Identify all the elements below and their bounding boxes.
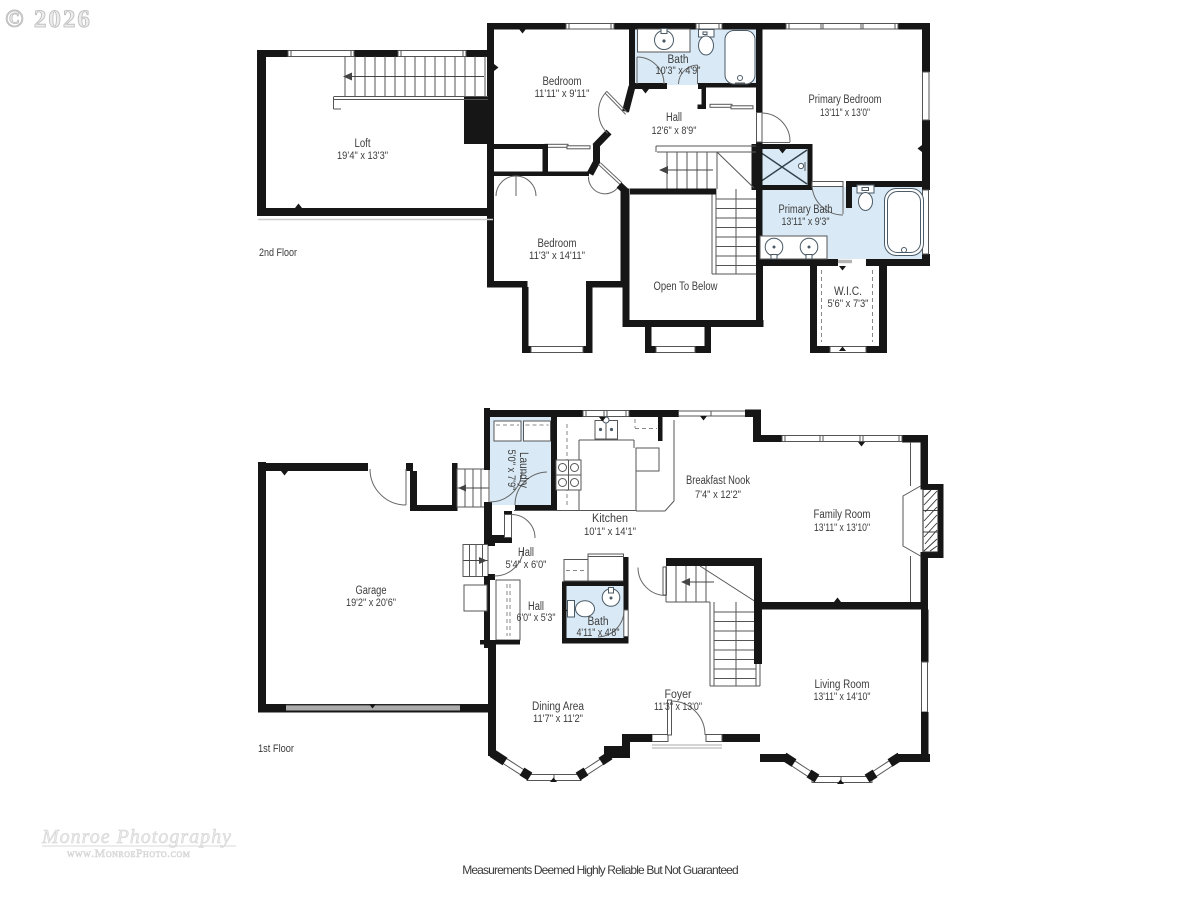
svg-text:Primary Bath: Primary Bath [779,204,833,216]
svg-text:5'4" x 6'0": 5'4" x 6'0" [506,559,547,571]
svg-text:Breakfast Nook: Breakfast Nook [686,475,750,487]
svg-text:Primary Bedroom: Primary Bedroom [809,94,882,106]
svg-text:www.MonroePhoto.com: www.MonroePhoto.com [67,846,190,860]
svg-text:1st Floor: 1st Floor [258,743,294,755]
svg-text:Hall: Hall [666,112,682,124]
svg-text:Kitchen: Kitchen [592,513,628,525]
svg-text:10'3" x 4'9": 10'3" x 4'9" [656,65,701,77]
svg-text:Monroe Photography: Monroe Photography [41,826,232,848]
svg-text:6'0" x 5'3": 6'0" x 5'3" [517,612,556,624]
svg-text:Hall: Hall [518,547,534,559]
svg-text:13'11" x 13'10": 13'11" x 13'10" [814,522,870,534]
svg-text:5'0" x 7'9": 5'0" x 7'9" [505,450,517,491]
svg-text:10'1" x 14'1": 10'1" x 14'1" [584,526,636,538]
svg-text:Living Room: Living Room [815,679,870,691]
svg-text:13'11" x 13'0": 13'11" x 13'0" [820,107,870,119]
svg-text:11'7" x 11'2": 11'7" x 11'2" [533,713,583,725]
svg-text:© 2026: © 2026 [5,6,92,33]
svg-text:11'3" x 13'0": 11'3" x 13'0" [654,701,702,713]
svg-text:Loft: Loft [355,138,372,150]
svg-text:Open To Below: Open To Below [654,281,719,293]
svg-text:Measurements Deemed Highly Rel: Measurements Deemed Highly Reliable But … [462,863,738,877]
svg-text:12'6" x 8'9": 12'6" x 8'9" [652,125,697,137]
svg-text:Bedroom: Bedroom [543,76,582,88]
svg-text:Bedroom: Bedroom [538,238,577,250]
svg-text:7'4" x 12'2": 7'4" x 12'2" [695,489,741,501]
svg-text:11'11" x 9'11": 11'11" x 9'11" [535,88,590,100]
svg-text:13'11" x 9'3": 13'11" x 9'3" [782,216,830,228]
svg-text:Family Room: Family Room [814,509,871,521]
svg-text:19’4" x 13'3": 19’4" x 13'3" [337,150,388,162]
svg-text:Garage: Garage [356,585,387,597]
svg-text:19'2" x 20'6": 19'2" x 20'6" [346,597,396,609]
svg-text:Dining Area: Dining Area [532,701,585,713]
svg-text:13'11" x 14'10": 13'11" x 14'10" [814,691,871,703]
svg-text:5'6" x 7'3": 5'6" x 7'3" [828,298,869,310]
svg-text:4'11" x 4'8": 4'11" x 4'8" [577,627,620,639]
svg-text:11'3" x 14'11": 11'3" x 14'11" [529,250,585,262]
svg-text:W.I.C.: W.I.C. [834,286,862,298]
svg-text:2nd Floor: 2nd Floor [259,247,297,259]
svg-text:Foyer: Foyer [665,689,692,701]
svg-text:Laundry: Laundry [517,452,529,488]
